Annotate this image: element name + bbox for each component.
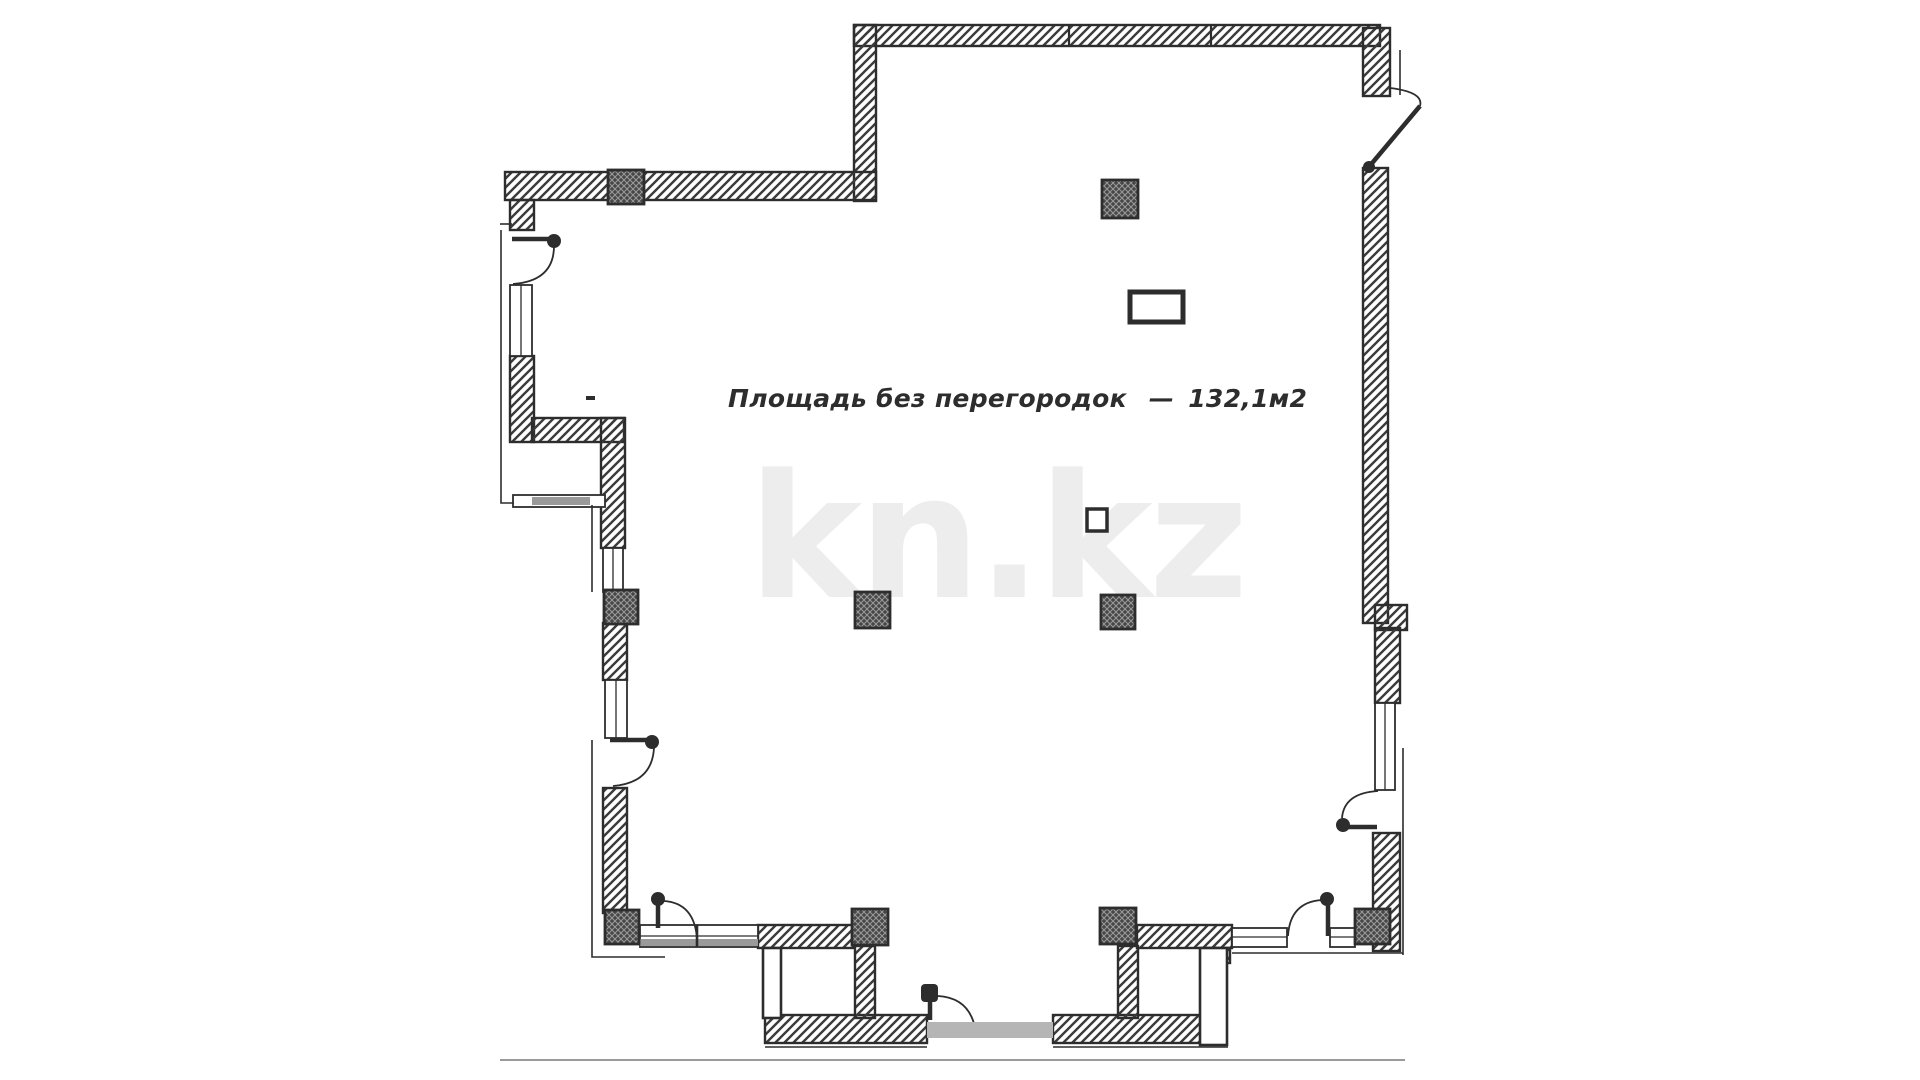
area-label: Площадь без перегородок	[728, 384, 1127, 413]
window-sill	[532, 497, 590, 505]
door-swing-left-upper	[512, 234, 561, 284]
wall-segment-left-bottom	[603, 788, 627, 913]
wall-segment-bay-bottom-right	[1053, 1015, 1203, 1043]
bay-wall-left	[763, 948, 781, 1018]
door-swing-right-mid	[1336, 791, 1378, 832]
area-annotation: Площадь без перегородок—132,1м2	[728, 384, 1228, 413]
entrance-threshold	[927, 1022, 1053, 1038]
wall-segment-bay-stub-right	[1118, 946, 1138, 1018]
window-sill	[640, 939, 758, 946]
bay-wall-right	[1200, 948, 1227, 1045]
wall-segment-left-mid	[510, 356, 534, 442]
door-swing-left-lower	[610, 735, 659, 786]
wall-segment-right-mid	[1375, 628, 1400, 703]
wall-segment-right-step	[1375, 605, 1407, 630]
column	[608, 170, 644, 204]
wall-segment-topleft	[505, 172, 876, 200]
floor-plan	[0, 0, 1920, 1080]
column	[1102, 180, 1138, 218]
area-dash: —	[1149, 384, 1174, 413]
window-bottom-left	[640, 925, 758, 947]
wall-segment-left-upper	[510, 200, 534, 230]
column	[1100, 908, 1136, 944]
wall-segment-bay-bottom-left	[765, 1015, 927, 1043]
doors-group	[512, 88, 1420, 1034]
column	[1355, 909, 1390, 944]
window-left-upper	[510, 285, 532, 356]
column	[604, 590, 638, 624]
column	[852, 909, 888, 945]
wall-segment-bottom-right	[1137, 925, 1232, 948]
tick-mark	[586, 396, 595, 400]
column	[1101, 595, 1135, 629]
window-bottom-right-a	[1232, 928, 1287, 947]
wall-segment-right-upper	[1363, 168, 1388, 623]
column	[855, 592, 890, 628]
door-swing-bottom-right	[1288, 892, 1334, 936]
door-swing-top-right	[1363, 88, 1420, 173]
wall-segment-top	[854, 25, 1380, 46]
wall-segment-bottom-left	[758, 925, 854, 948]
window-bottom-right-b	[1330, 928, 1355, 947]
shaft-rectangle-symbol	[1130, 292, 1183, 322]
wall-segment-right-stub	[1363, 28, 1390, 96]
wall-segment-bay-stub-left	[855, 946, 875, 1018]
window-left-lower	[605, 680, 627, 738]
wall-segment-left-lower-a	[601, 418, 625, 548]
floor-plan-page: kn.kz	[0, 0, 1920, 1080]
area-value: 132,1м2	[1188, 384, 1307, 413]
wall-segment-left-lower-b	[603, 623, 627, 680]
column	[605, 910, 639, 944]
window-right	[1375, 703, 1395, 790]
columns-group	[604, 170, 1390, 945]
small-square-symbol	[1087, 509, 1107, 531]
window-left-mid	[603, 548, 623, 592]
